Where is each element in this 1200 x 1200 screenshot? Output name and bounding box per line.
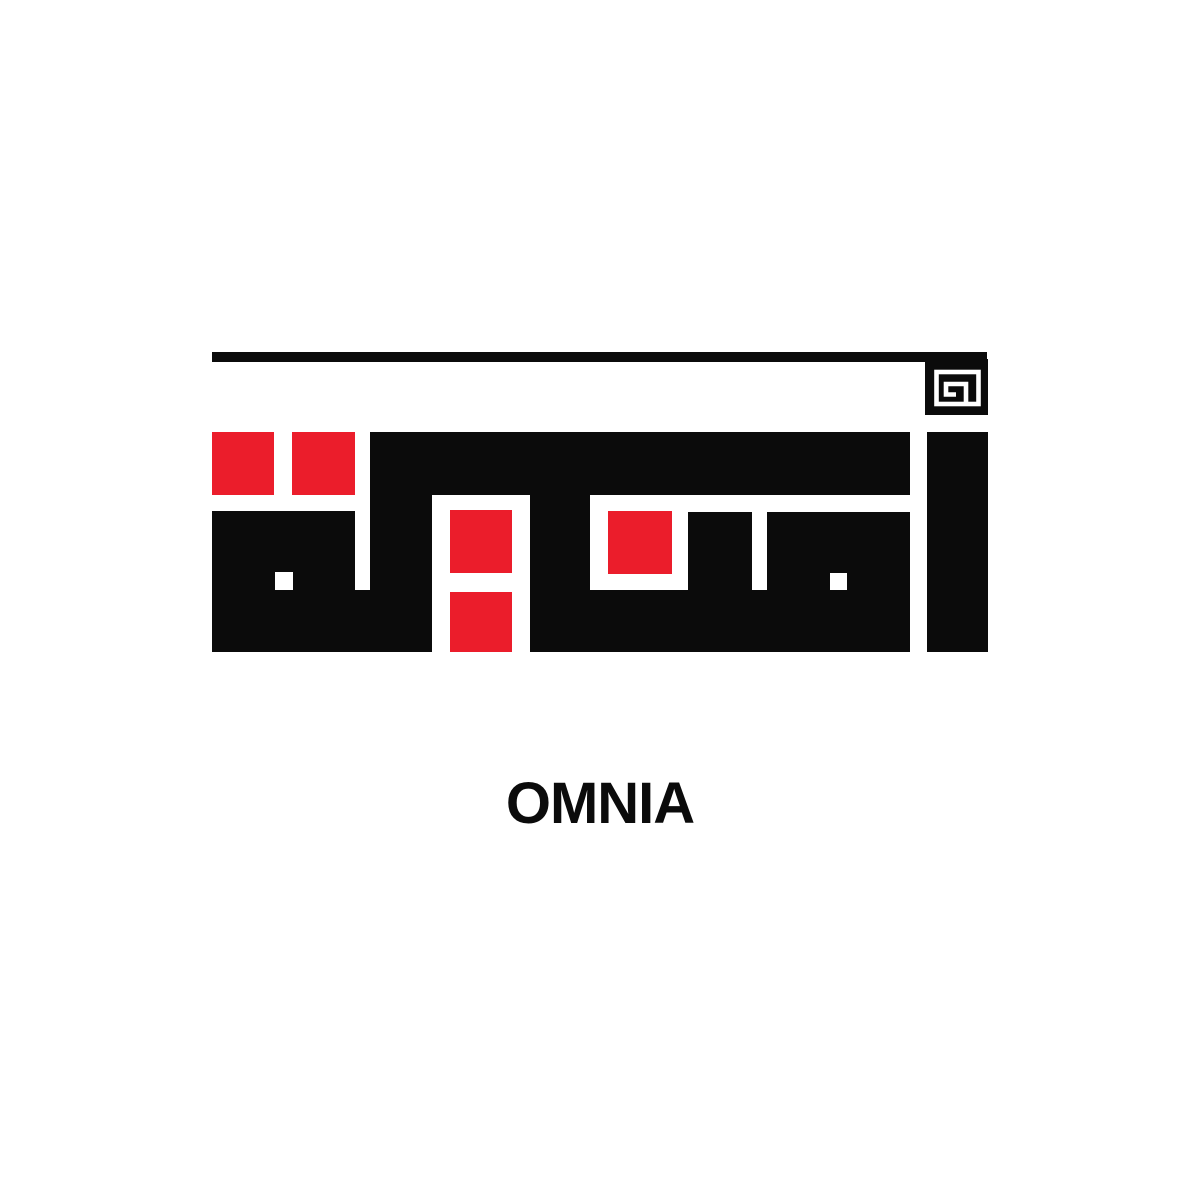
square-spiral-icon	[925, 359, 988, 415]
notch-left	[275, 572, 293, 590]
right-mid-block	[688, 512, 910, 590]
red-square-2	[292, 432, 355, 495]
red-square-5	[608, 511, 672, 574]
top-bar	[212, 352, 987, 362]
mid-stroke	[530, 495, 590, 652]
red-square-3	[450, 510, 512, 573]
red-square-1	[212, 432, 274, 495]
artwork-canvas: OMNIA af CREATi e “BY : AHMED FARAG” WWW…	[0, 0, 1200, 1200]
left-join	[355, 590, 432, 652]
latin-name-text: OMNIA	[0, 775, 1200, 833]
red-square-4	[450, 592, 512, 652]
top-band	[370, 432, 910, 495]
alif-column	[927, 432, 988, 652]
footer: af CREATi e “BY : AHMED FARAG” WWW.AHMED…	[0, 1090, 1200, 1170]
slot-right	[752, 512, 767, 590]
bottom-band-right	[590, 590, 910, 652]
notch-right	[830, 573, 847, 590]
